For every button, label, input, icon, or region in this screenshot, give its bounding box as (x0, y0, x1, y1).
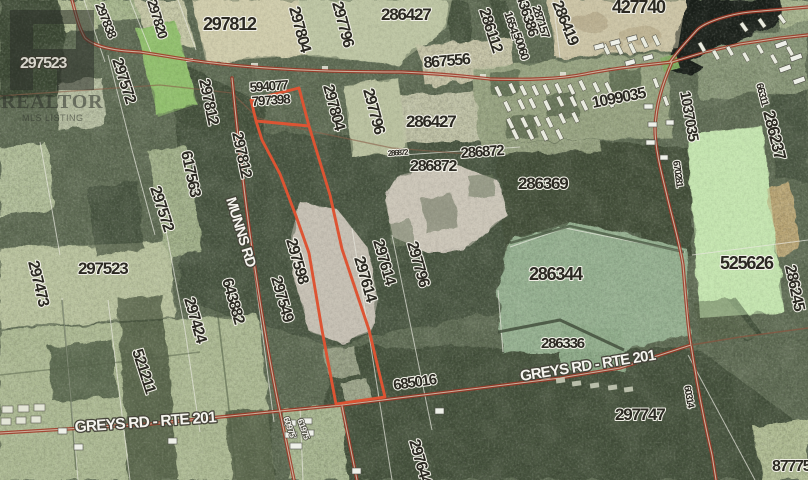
svg-text:286872: 286872 (410, 158, 457, 175)
svg-text:286369: 286369 (518, 174, 568, 193)
svg-text:525626: 525626 (720, 253, 774, 273)
svg-text:286427: 286427 (381, 5, 431, 24)
svg-text:297523: 297523 (20, 55, 67, 72)
svg-text:427740: 427740 (612, 0, 666, 17)
svg-text:286427: 286427 (406, 112, 456, 131)
svg-text:286336: 286336 (541, 335, 585, 352)
svg-text:297747: 297747 (615, 405, 665, 424)
svg-text:797398: 797398 (251, 91, 291, 109)
svg-text:286344: 286344 (529, 264, 583, 284)
svg-text:297812: 297812 (203, 14, 257, 34)
svg-text:297523: 297523 (78, 259, 128, 278)
svg-text:286872: 286872 (460, 142, 505, 162)
svg-text:MLS LISTING: MLS LISTING (22, 113, 84, 123)
svg-text:286872: 286872 (388, 148, 410, 158)
svg-text:87775: 87775 (772, 458, 808, 475)
svg-text:REALTOR: REALTOR (1, 91, 103, 113)
